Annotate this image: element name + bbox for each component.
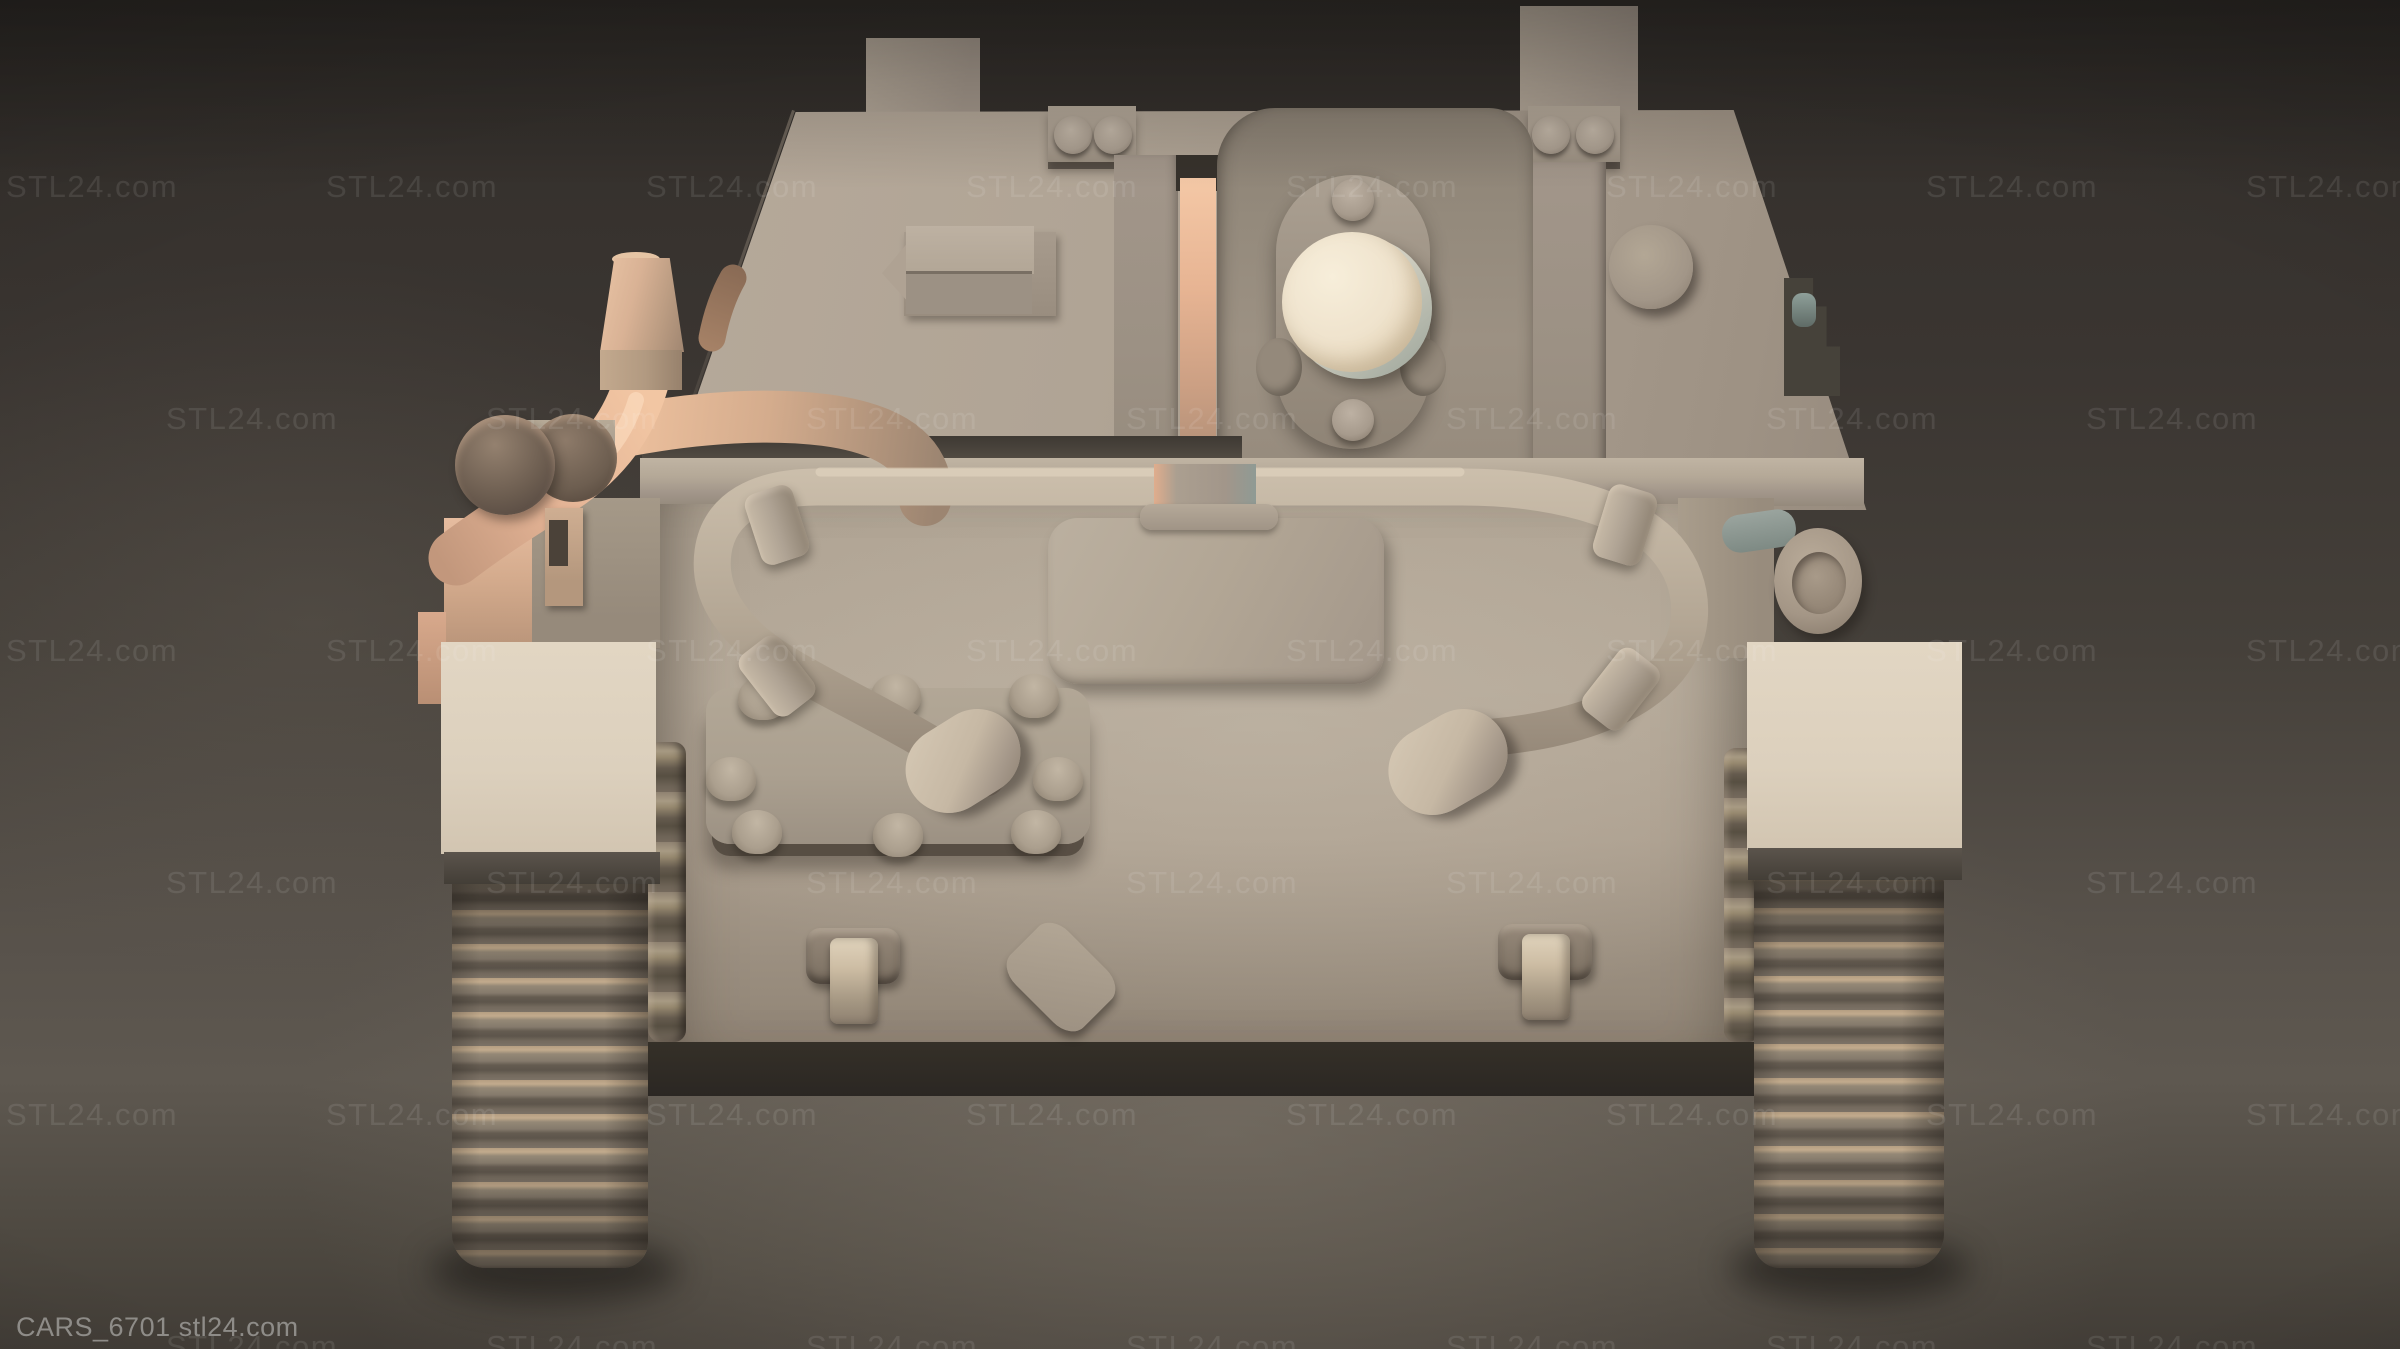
hull-bottom-band [648,1042,1754,1096]
right-fender [1747,642,1962,850]
shackle-bracket-right [1498,920,1594,1020]
watermark-model-id: CARS_6701 stl24.com [16,1312,299,1343]
tow-cable [712,487,1689,778]
left-track [452,876,648,1268]
gun-pedestal-cap [1140,504,1278,530]
left-fender-underside [444,852,660,884]
render-canvas: STL24.comSTL24.comSTL24.comSTL24.comSTL2… [0,0,2400,1349]
right-fender-underside [1748,848,1962,880]
bracket-strap [1522,934,1570,1020]
right-track [1754,874,1944,1268]
tow-cable-svg [0,0,2400,1349]
bracket-strap [830,938,878,1024]
left-fender [441,642,656,854]
shackle-bracket-left [806,924,902,1024]
